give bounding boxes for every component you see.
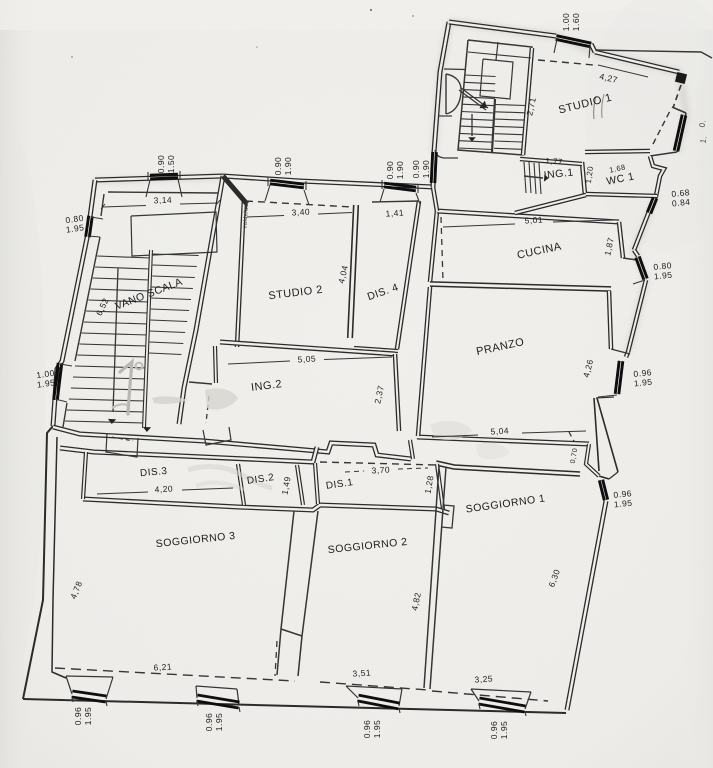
svg-text:3,14: 3,14 — [153, 195, 172, 206]
svg-text:1.60: 1.60 — [571, 13, 581, 32]
svg-text:6,21: 6,21 — [153, 661, 172, 672]
svg-text:1.90: 1.90 — [283, 157, 293, 176]
svg-text:5,05: 5,05 — [297, 354, 316, 365]
svg-text:0.90: 0.90 — [411, 160, 421, 179]
svg-text:1.95: 1.95 — [613, 498, 632, 510]
svg-text:0.96: 0.96 — [362, 720, 372, 739]
svg-text:1.95: 1.95 — [653, 270, 672, 282]
svg-text:0.90: 0.90 — [156, 155, 166, 174]
svg-text:5,04: 5,04 — [490, 425, 509, 436]
svg-text:5,01: 5,01 — [524, 214, 543, 225]
svg-text:3,51: 3,51 — [352, 667, 371, 678]
svg-text:0.96: 0.96 — [489, 721, 499, 740]
svg-text:0.90: 0.90 — [273, 157, 283, 176]
svg-text:1.00: 1.00 — [561, 13, 571, 32]
svg-text:3,70: 3,70 — [371, 465, 390, 476]
svg-text:1.95: 1.95 — [214, 713, 224, 732]
svg-text:3,40: 3,40 — [291, 207, 310, 218]
svg-text:1,77: 1,77 — [545, 156, 563, 166]
svg-text:0.96: 0.96 — [204, 713, 214, 732]
svg-text:1.95: 1.95 — [83, 707, 93, 726]
svg-text:3,25: 3,25 — [474, 673, 493, 684]
svg-text:1.95: 1.95 — [633, 377, 652, 389]
svg-text:1.90: 1.90 — [395, 161, 405, 180]
svg-text:1.90: 1.90 — [421, 160, 431, 179]
svg-text:1.95: 1.95 — [372, 720, 382, 739]
svg-text:0.96: 0.96 — [73, 707, 83, 726]
svg-text:4,20: 4,20 — [154, 484, 173, 495]
svg-text:1.50: 1.50 — [166, 155, 176, 174]
svg-text:1.: 1. — [698, 135, 708, 144]
svg-text:0.: 0. — [697, 119, 707, 128]
svg-text:1.95: 1.95 — [499, 721, 509, 740]
svg-text:1,41: 1,41 — [385, 207, 404, 218]
svg-text:0.84: 0.84 — [671, 197, 690, 209]
svg-text:0.90: 0.90 — [385, 161, 395, 180]
